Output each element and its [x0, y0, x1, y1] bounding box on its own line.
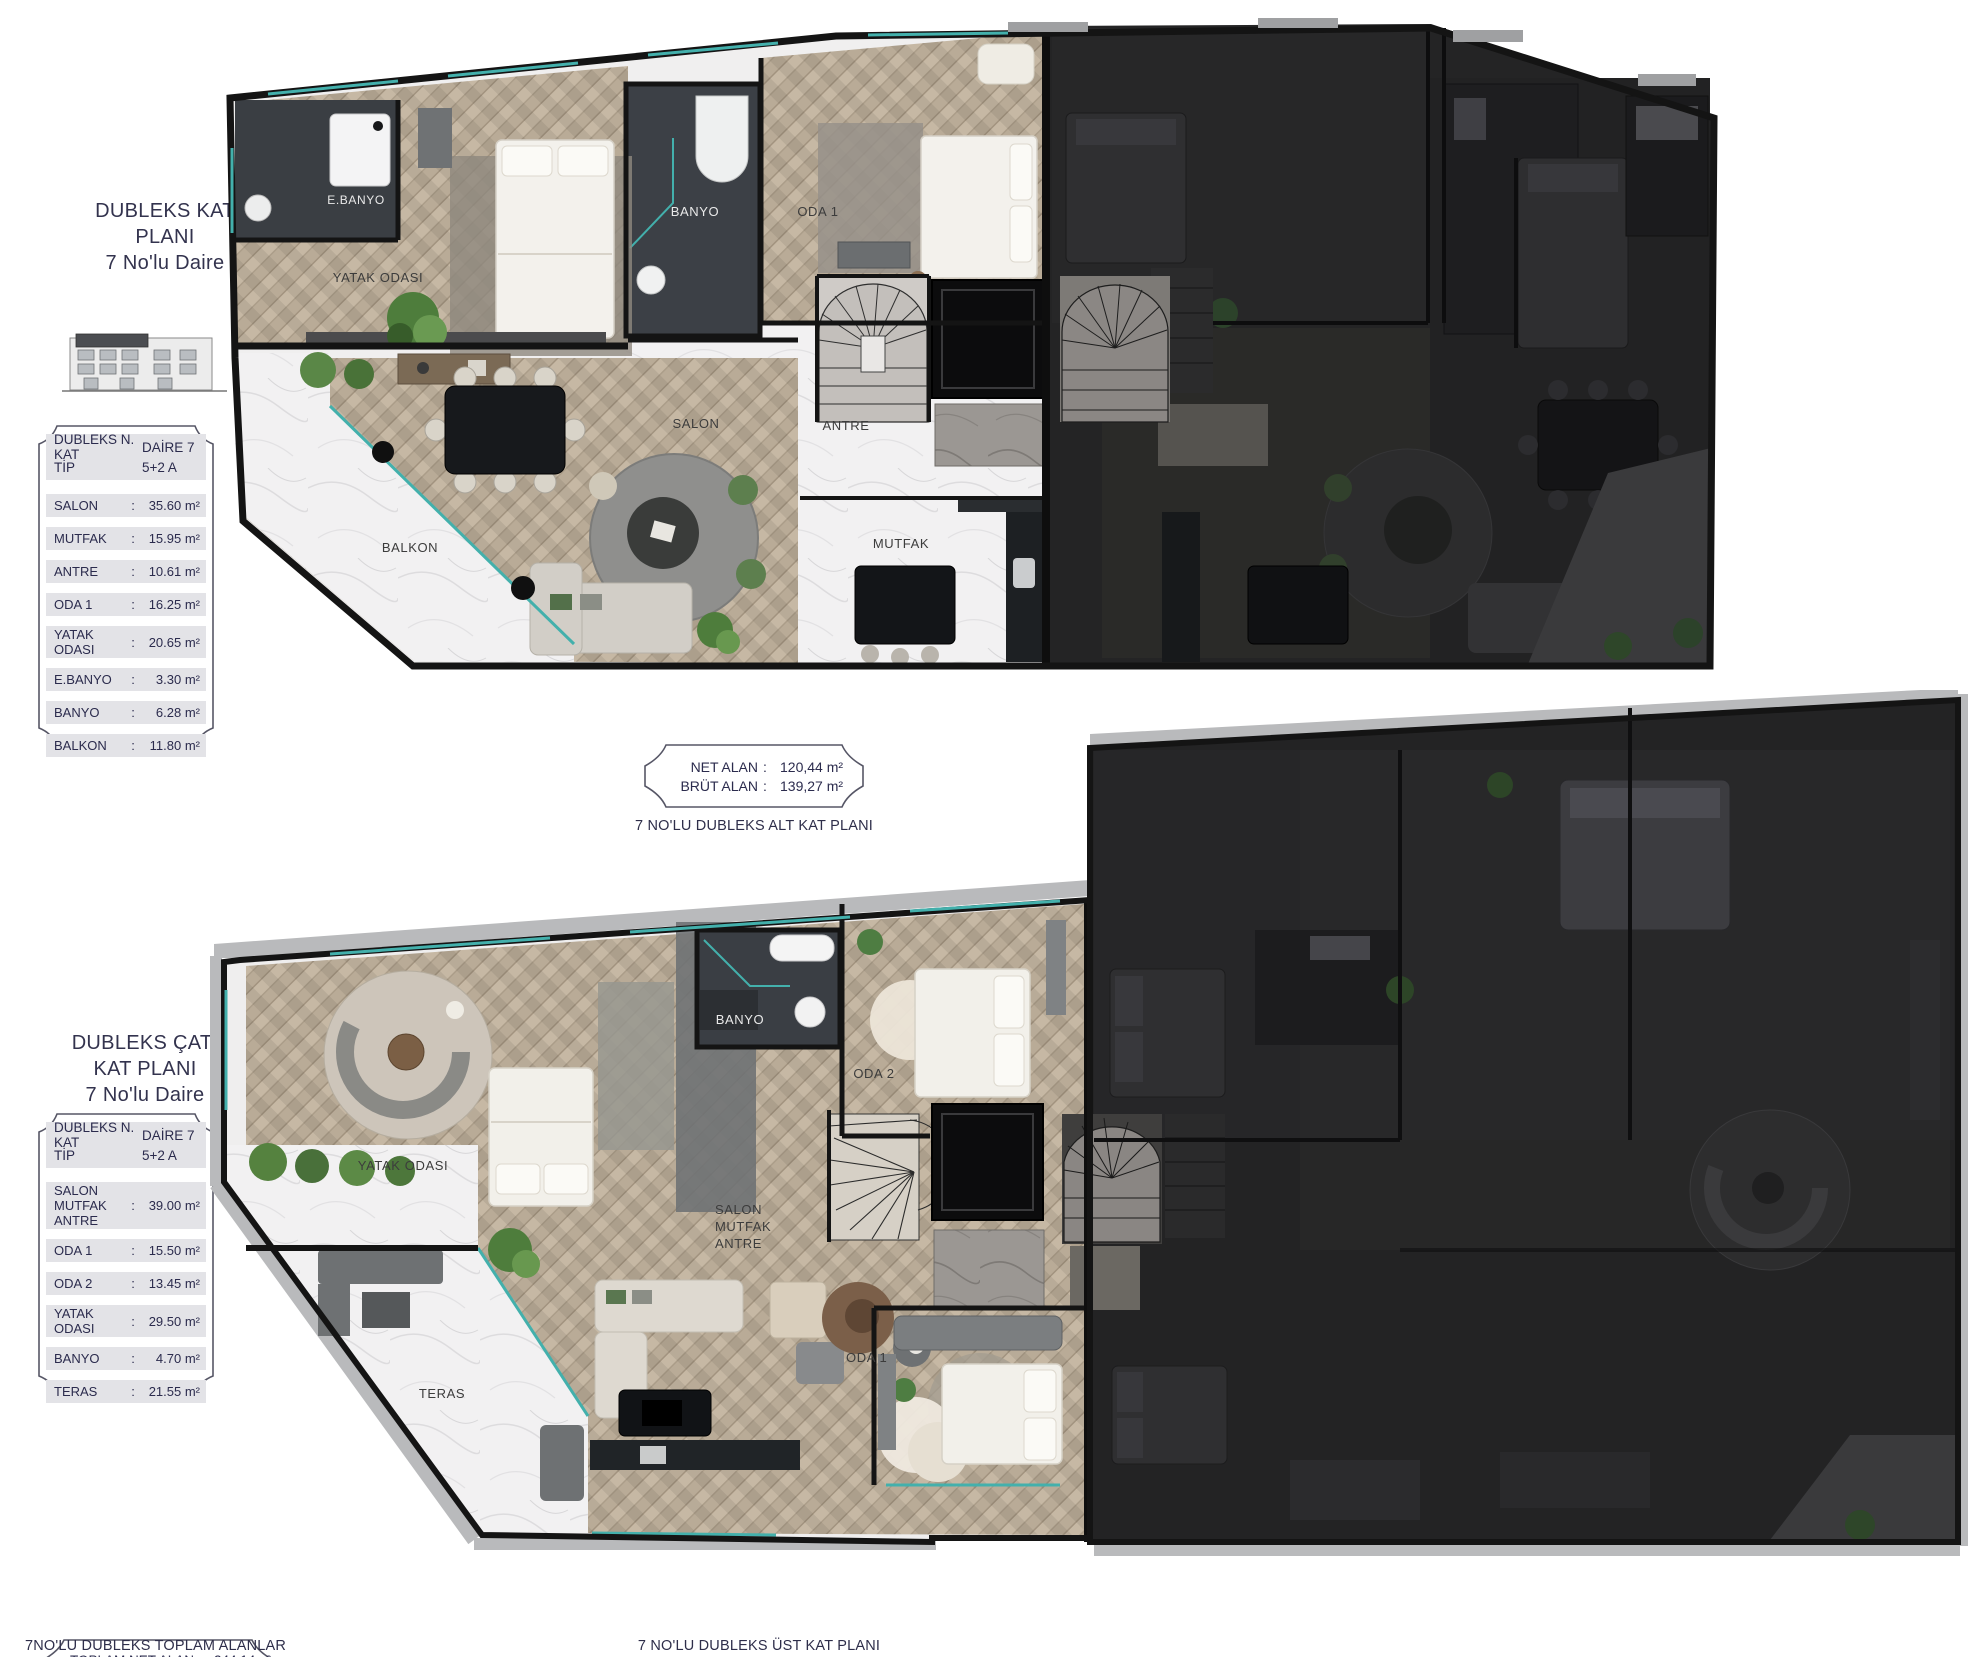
label-yatak-odasi-2: YATAK ODASI: [358, 1158, 448, 1173]
totals-caption: 7NO'LU DUBLEKS TOPLAM ALANLAR: [10, 1638, 325, 1654]
table-row: ODA 1:15.50 m²: [46, 1239, 206, 1262]
label-oda1-2: ODA 1: [846, 1350, 887, 1365]
plan2-elevator: [932, 1104, 1043, 1220]
label-salon-line1: SALON: [715, 1202, 762, 1217]
staircase: [817, 276, 929, 422]
table-row: TERAS:21.55 m²: [46, 1380, 206, 1403]
building-elevation-icon: [62, 328, 227, 400]
table-row: ODA 1:16.25 m²: [46, 593, 206, 616]
table-row: YATAK ODASI:29.50 m²: [46, 1305, 206, 1337]
ebanyo-room: [235, 100, 398, 240]
plan1-info-table: DUBLEKS N. KATDAİRE 7 TİP5+2 A SALON:35.…: [33, 420, 219, 752]
table-row: YATAK ODASI:20.65 m²: [46, 626, 206, 658]
table-row: ANTRE:10.61 m²: [46, 560, 206, 583]
label-salon: SALON: [672, 416, 719, 431]
elevator: [932, 280, 1044, 398]
label-mutfak: MUTFAK: [873, 536, 929, 551]
table-row: SALON:35.60 m²: [46, 494, 206, 517]
plan2-marble-slab: [934, 1230, 1044, 1308]
table-row: MUTFAK:15.95 m²: [46, 527, 206, 550]
label-oda2: ODA 2: [853, 1066, 894, 1081]
plan1-drawing: E.BANYO YATAK ODASI BANYO ODA 1 SALON AN…: [218, 18, 1720, 676]
table-header: DUBLEKS N. KATDAİRE 7 TİP5+2 A: [46, 1122, 206, 1168]
label-antre: ANTRE: [822, 418, 869, 433]
plan2-mirrored-unit-dark: [1062, 700, 1958, 1542]
table-row: E.BANYO:3.30 m²: [46, 668, 206, 691]
plan2-drawing: YATAK ODASI BANYO ODA 2 SALON MUTFAK ANT…: [210, 690, 1970, 1570]
label-yatak-odasi: YATAK ODASI: [333, 270, 423, 285]
yatak-furniture: [418, 108, 632, 356]
table-row: ODA 2:13.45 m²: [46, 1272, 206, 1295]
table-row: BANYO:4.70 m²: [46, 1347, 206, 1370]
label-teras: TERAS: [419, 1386, 465, 1401]
table-header: DUBLEKS N. KATDAİRE 7 TİP5+2 A: [46, 434, 206, 480]
label-banyo: BANYO: [671, 204, 720, 219]
label-balkon: BALKON: [382, 540, 438, 555]
plan2-caption: 7 NO'LU DUBLEKS ÜST KAT PLANI: [609, 1638, 909, 1654]
table-row: BANYO:6.28 m²: [46, 701, 206, 724]
label-ebanyo: E.BANYO: [327, 193, 385, 207]
header-right: DAİRE 7: [142, 440, 195, 455]
table-row: SALON MUTFAK ANTRE:39.00 m²: [46, 1182, 206, 1229]
plan2-info-table: DUBLEKS N. KATDAİRE 7 TİP5+2 A SALON MUT…: [33, 1108, 219, 1400]
label-oda1: ODA 1: [797, 204, 838, 219]
mirrored-unit-dark: [1048, 24, 1716, 666]
floorplan-sheet: DUBLEKS KAT PLANI 7 No'lu Daire DUBLEKS …: [0, 0, 1980, 1657]
hall-marble-slab: [935, 404, 1044, 466]
tip-value: 5+2 A: [142, 460, 177, 475]
label-banyo-2: BANYO: [716, 1012, 765, 1027]
plan2-banyo-room: [697, 930, 840, 1047]
header-left: DUBLEKS N. KAT: [54, 432, 142, 462]
tip-label: TİP: [54, 460, 142, 475]
table-row: BALKON:11.80 m²: [46, 734, 206, 757]
label-salon-line3: ANTRE: [715, 1236, 762, 1251]
plan2-oda1: [878, 1316, 1062, 1485]
label-salon-line2: MUTFAK: [715, 1219, 771, 1234]
